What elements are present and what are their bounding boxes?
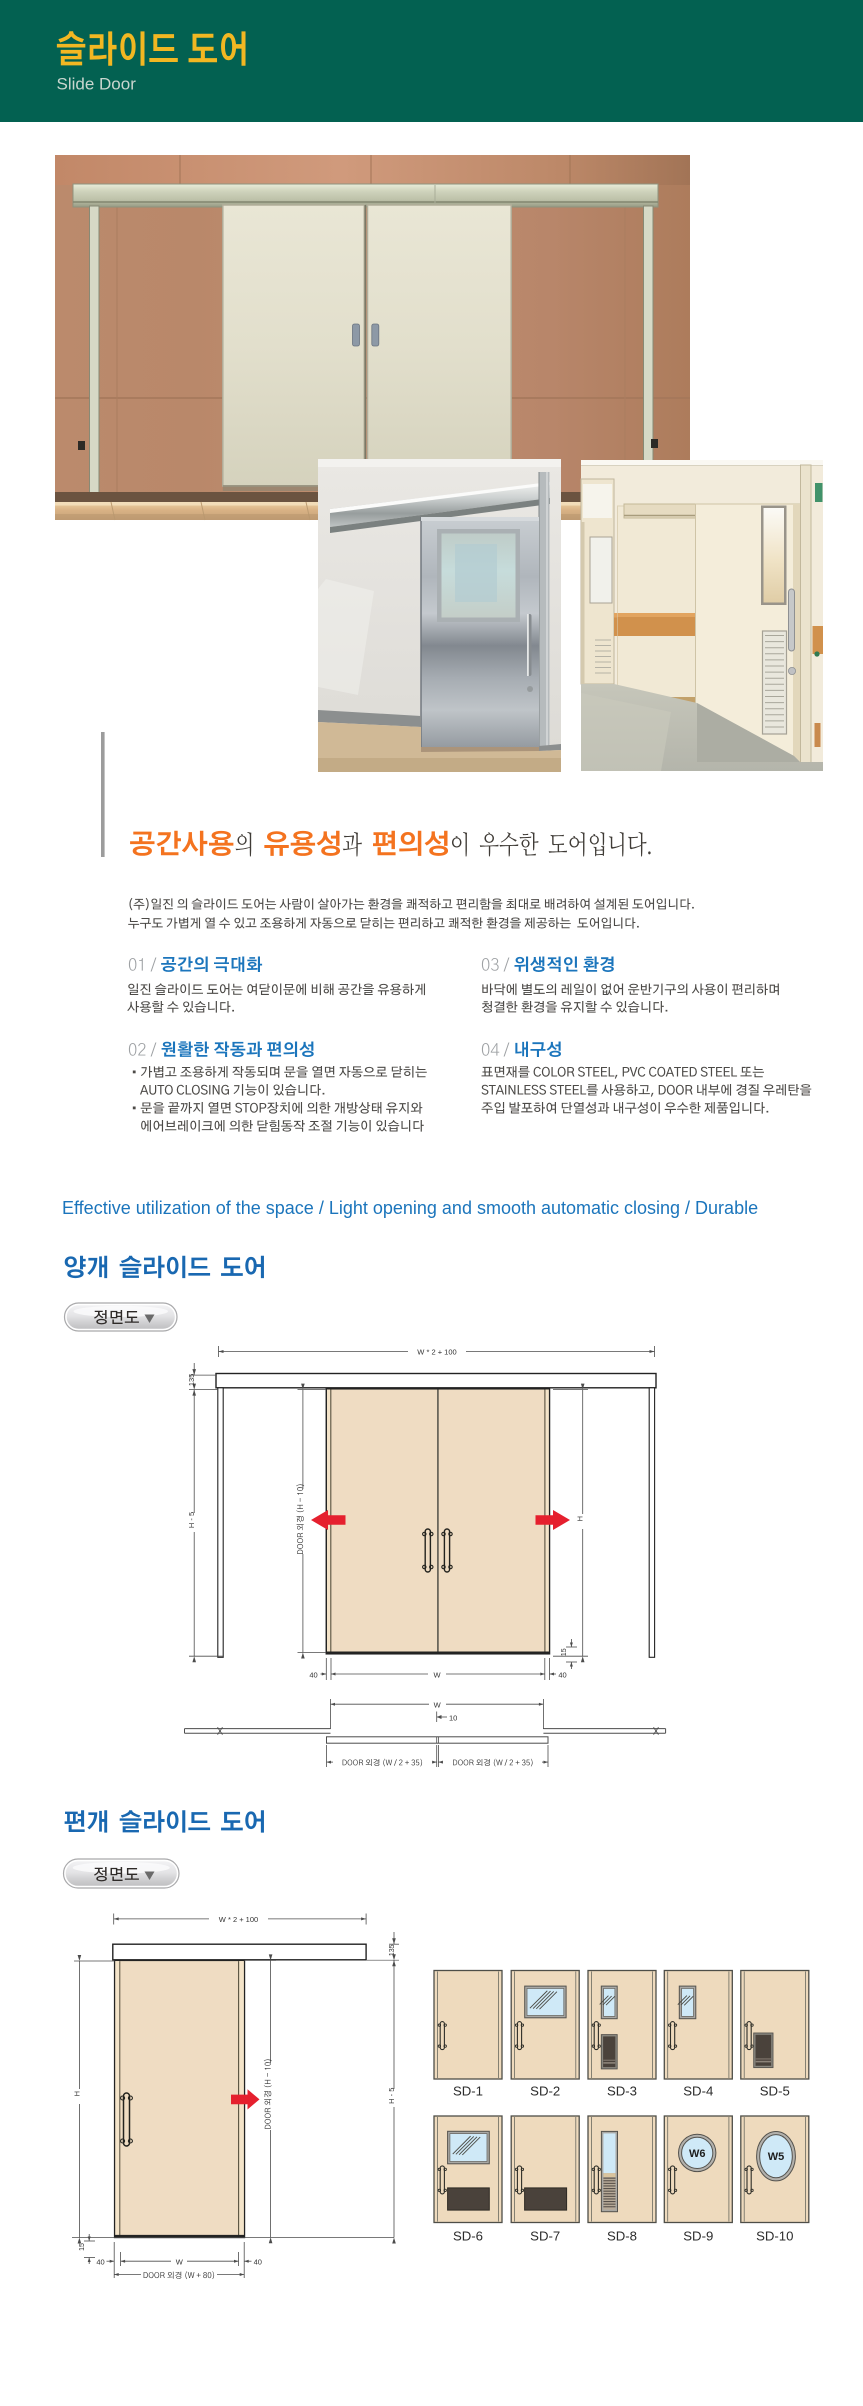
svg-text:15: 15 xyxy=(79,2243,86,2251)
svg-text:SD-1: SD-1 xyxy=(453,2084,483,2099)
svg-text:H - 5: H - 5 xyxy=(187,1512,196,1528)
svg-text:40: 40 xyxy=(254,2257,262,2266)
svg-text:W6: W6 xyxy=(689,2148,706,2160)
svg-text:W * 2 + 100: W * 2 + 100 xyxy=(417,1348,456,1357)
svg-text:40: 40 xyxy=(96,2257,104,2266)
svg-text:40: 40 xyxy=(309,1670,317,1679)
svg-text:10: 10 xyxy=(449,1713,457,1722)
svg-text:W5: W5 xyxy=(768,2151,785,2163)
svg-text:SD-5: SD-5 xyxy=(760,2084,790,2099)
svg-text:135: 135 xyxy=(187,1374,196,1387)
svg-text:H: H xyxy=(576,1516,585,1521)
svg-text:Effective utilization of the s: Effective utilization of the space / Lig… xyxy=(62,1198,758,1218)
svg-text:SD-8: SD-8 xyxy=(607,2229,637,2244)
svg-text:W * 2 + 100: W * 2 + 100 xyxy=(219,1915,258,1924)
svg-text:W: W xyxy=(433,1670,441,1679)
svg-text:SD-6: SD-6 xyxy=(453,2229,483,2244)
svg-text:Slide Door: Slide Door xyxy=(57,75,137,94)
svg-text:SD-10: SD-10 xyxy=(756,2229,793,2244)
svg-text:15: 15 xyxy=(561,1648,568,1656)
svg-text:SD-7: SD-7 xyxy=(530,2229,560,2244)
svg-text:SD-2: SD-2 xyxy=(530,2084,560,2099)
svg-text:H - 5: H - 5 xyxy=(387,2088,396,2104)
svg-text:W: W xyxy=(434,1700,442,1709)
svg-text:H: H xyxy=(72,2091,81,2096)
svg-text:SD-4: SD-4 xyxy=(683,2084,713,2099)
svg-text:W: W xyxy=(176,2257,184,2266)
svg-text:40: 40 xyxy=(558,1670,566,1679)
svg-text:SD-3: SD-3 xyxy=(607,2084,637,2099)
svg-text:SD-9: SD-9 xyxy=(683,2229,713,2244)
